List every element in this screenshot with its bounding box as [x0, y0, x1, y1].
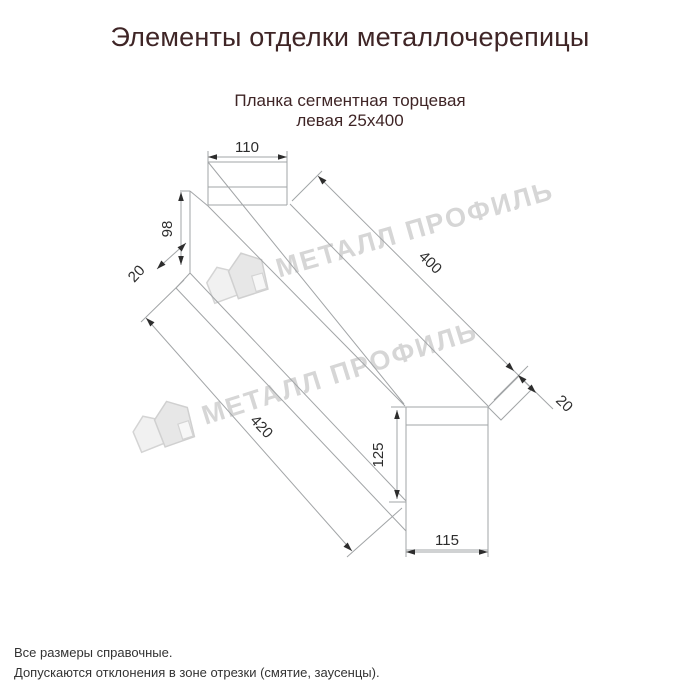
dim-top-width: 110 — [235, 139, 259, 156]
dim-end-face-width: 115 — [435, 532, 459, 549]
catalog-page: Элементы отделки металлочерепицы Планка … — [0, 0, 700, 700]
note-line2: Допускаются отклонения в зоне отрезки (с… — [14, 663, 380, 683]
watermark-text: МЕТАЛЛ ПРОФИЛЬ — [198, 316, 481, 431]
dim-end-fold: 20 — [552, 392, 576, 416]
footer-notes: Все размеры справочные. Допускаются откл… — [14, 643, 380, 683]
technical-drawing: МЕТАЛЛ ПРОФИЛЬ МЕТАЛЛ ПРОФИЛЬ 110 98 20 … — [0, 0, 700, 700]
dim-top-edge-length: 400 — [415, 248, 445, 278]
metal-profil-logo-icon — [127, 396, 196, 455]
metal-profil-logo-icon — [202, 248, 271, 306]
dim-neck-height: 98 — [159, 221, 176, 238]
dim-end-face-height: 125 — [370, 442, 387, 467]
watermark-lower: МЕТАЛЛ ПРОФИЛЬ — [127, 306, 482, 455]
note-line1: Все размеры справочные. — [14, 643, 380, 663]
dim-top-fold: 20 — [125, 262, 149, 286]
